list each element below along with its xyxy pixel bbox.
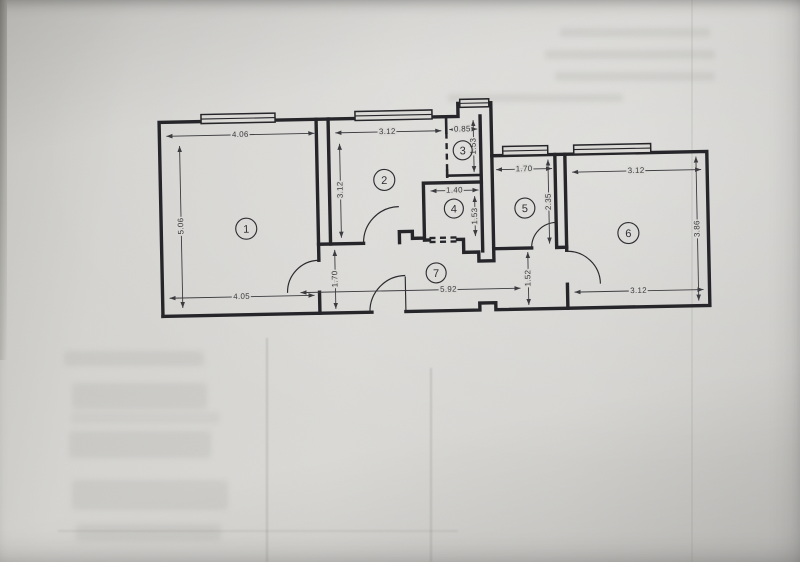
- room-number-3: 3: [460, 145, 466, 157]
- dim-room3-right: 1.53: [469, 137, 478, 154]
- dim-room5-right: 2.35: [544, 193, 553, 210]
- room-number-5: 5: [522, 203, 528, 215]
- dim-room2-top: 3.12: [379, 127, 396, 136]
- dim-room1-bottom: 4.05: [233, 292, 250, 301]
- dim-room1-left: 5.06: [176, 217, 185, 234]
- dim-room6-right: 3.86: [692, 220, 701, 237]
- window-step-line: [460, 103, 489, 104]
- dim-room6-top: 3.12: [628, 166, 645, 175]
- dim-room4-top: 1.40: [446, 185, 463, 194]
- floor-plan: 4.06 5.06 4.05 3.12 3.12 0.85 1.53 1.40 …: [0, 0, 800, 562]
- wall-room2-hall: [319, 243, 364, 244]
- room-number-6: 6: [625, 228, 631, 240]
- room-number-1: 1: [243, 224, 249, 236]
- dim-room2-left: 3.12: [335, 181, 344, 198]
- dim-room4-right: 1.53: [470, 207, 479, 224]
- dim-room3-top: 0.85: [454, 124, 471, 133]
- room-number-4: 4: [451, 203, 457, 215]
- room-number-2: 2: [381, 175, 387, 187]
- dim-hall-length: 5.92: [440, 285, 457, 294]
- wall-room5-room6: [565, 154, 567, 250]
- wall-room3-bottom: [447, 175, 481, 176]
- dim-hall-left: 1.70: [330, 270, 339, 287]
- room-number-7: 7: [433, 268, 439, 280]
- dim-room6-bottom: 3.12: [630, 286, 647, 295]
- dim-room1-top: 4.06: [232, 130, 249, 139]
- scanned-page: 4.06 5.06 4.05 3.12 3.12 0.85 1.53 1.40 …: [0, 0, 800, 562]
- dim-room5-top: 1.70: [516, 164, 533, 173]
- wall-room5-left: [492, 156, 494, 249]
- paper-grain: [0, 0, 800, 562]
- dim-hall-right: 1.52: [523, 269, 532, 286]
